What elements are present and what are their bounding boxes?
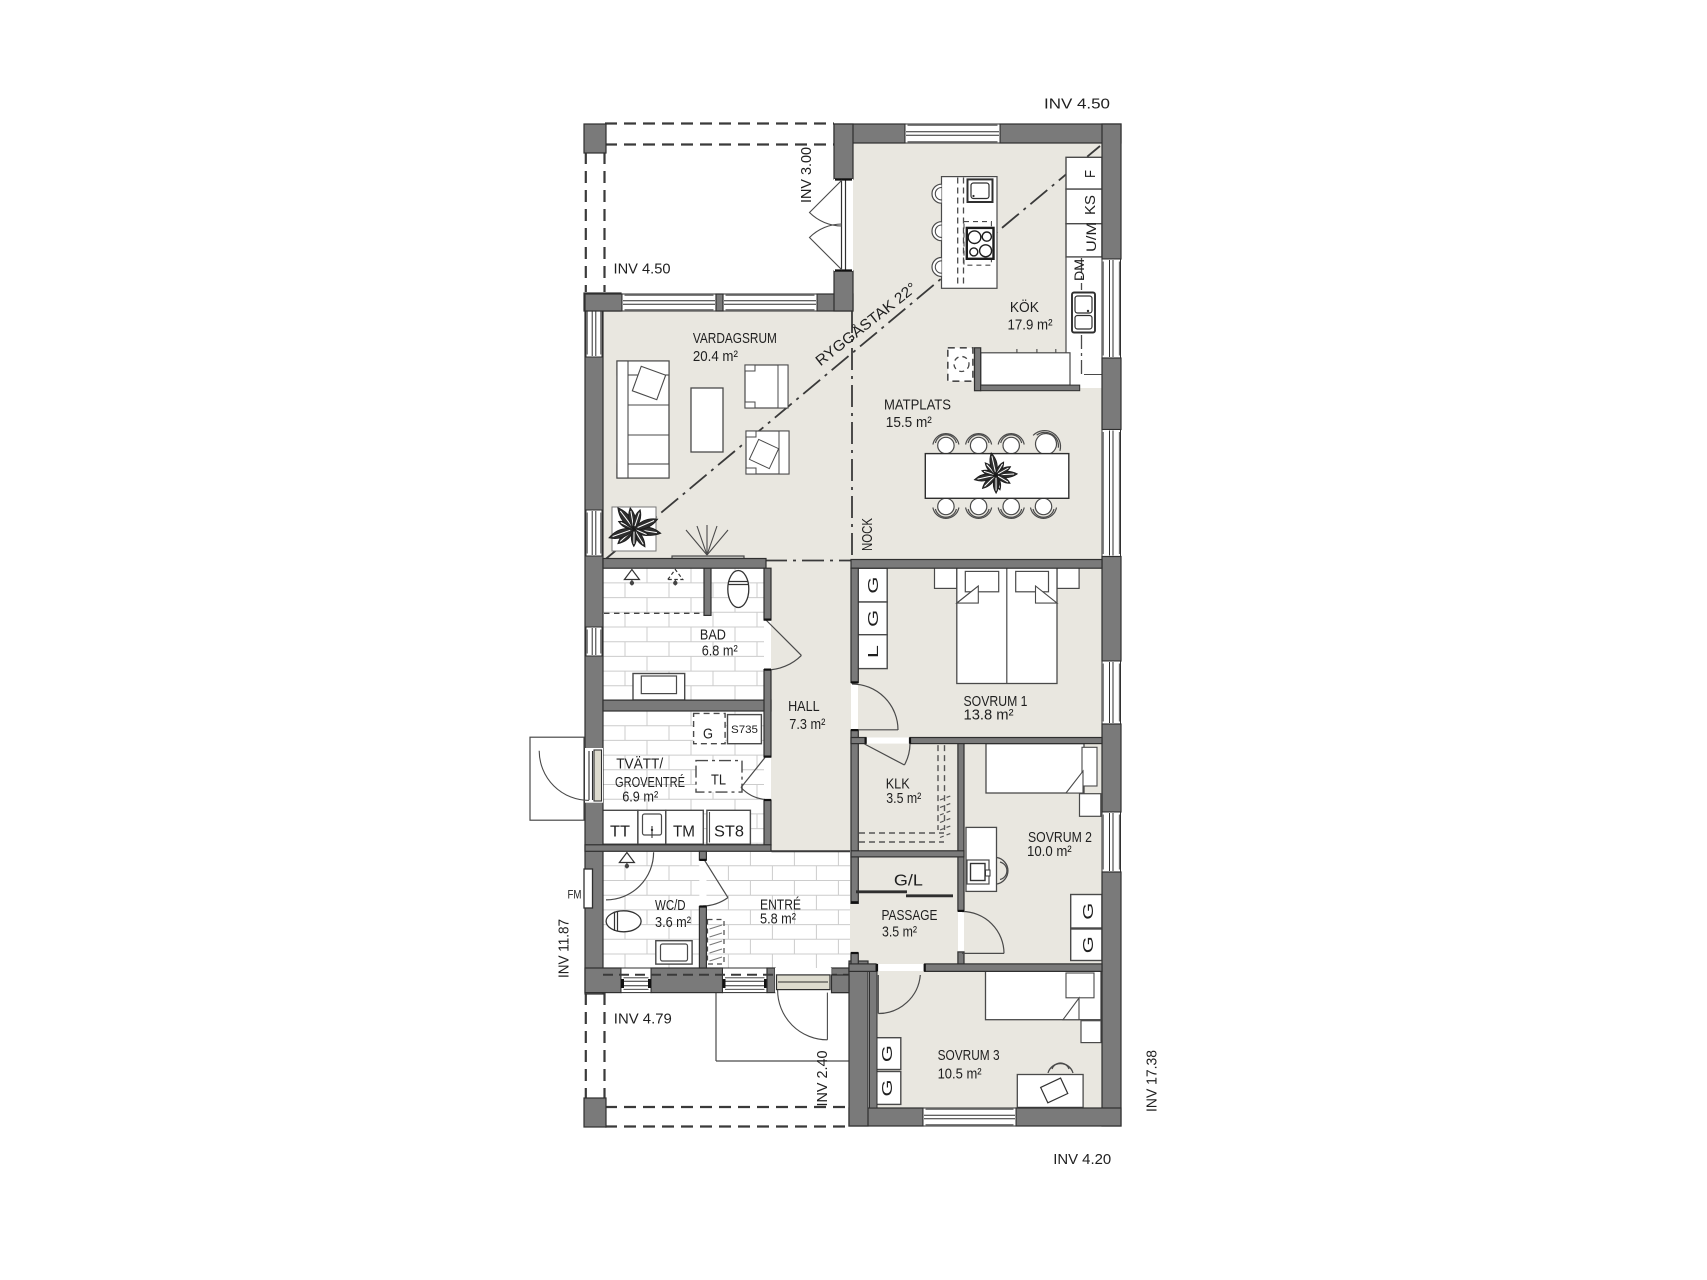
svg-text:F: F bbox=[1082, 170, 1099, 178]
svg-text:INV 2.40: INV 2.40 bbox=[814, 1051, 831, 1107]
svg-text:KÖK: KÖK bbox=[1010, 298, 1039, 316]
svg-text:G: G bbox=[879, 1045, 896, 1062]
svg-text:TL: TL bbox=[711, 772, 726, 789]
svg-text:G: G bbox=[1080, 936, 1097, 953]
svg-text:7.3 m²: 7.3 m² bbox=[789, 716, 825, 733]
svg-text:TM: TM bbox=[673, 824, 695, 841]
svg-text:FM: FM bbox=[568, 888, 582, 902]
svg-text:SOVRUM 3: SOVRUM 3 bbox=[938, 1047, 1000, 1064]
svg-text:13.8 m²: 13.8 m² bbox=[964, 707, 1014, 724]
svg-text:G: G bbox=[865, 610, 882, 627]
svg-text:DM: DM bbox=[1071, 259, 1087, 281]
svg-text:10.0 m²: 10.0 m² bbox=[1027, 843, 1072, 860]
svg-text:6.8 m²: 6.8 m² bbox=[702, 643, 738, 660]
svg-text:NOCK: NOCK bbox=[859, 518, 876, 551]
svg-text:WC/D: WC/D bbox=[655, 897, 686, 914]
svg-text:6.9 m²: 6.9 m² bbox=[622, 789, 658, 806]
svg-text:G: G bbox=[879, 1079, 896, 1096]
svg-text:U/M: U/M bbox=[1083, 222, 1099, 252]
svg-text:G: G bbox=[865, 577, 882, 594]
svg-text:L: L bbox=[865, 645, 882, 658]
svg-text:15.5 m²: 15.5 m² bbox=[886, 414, 932, 431]
svg-text:KS: KS bbox=[1082, 195, 1099, 215]
svg-text:3.5 m²: 3.5 m² bbox=[886, 790, 921, 807]
svg-text:17.9 m²: 17.9 m² bbox=[1008, 317, 1053, 334]
svg-text:INV 11.87: INV 11.87 bbox=[556, 919, 573, 978]
svg-text:G: G bbox=[1080, 903, 1097, 920]
svg-text:3.5 m²: 3.5 m² bbox=[882, 924, 917, 941]
svg-text:INV 4.50: INV 4.50 bbox=[1044, 96, 1110, 113]
svg-text:INV 3.00: INV 3.00 bbox=[798, 147, 815, 203]
svg-text:HALL: HALL bbox=[788, 698, 820, 715]
svg-text:INV 4.20: INV 4.20 bbox=[1053, 1151, 1111, 1168]
svg-text:MATPLATS: MATPLATS bbox=[884, 397, 951, 414]
svg-text:TT: TT bbox=[610, 824, 630, 841]
svg-text:20.4 m²: 20.4 m² bbox=[693, 348, 738, 365]
svg-text:10.5 m²: 10.5 m² bbox=[938, 1066, 982, 1083]
svg-text:PASSAGE: PASSAGE bbox=[882, 907, 938, 924]
svg-text:G/L: G/L bbox=[894, 873, 923, 890]
svg-text:BAD: BAD bbox=[700, 627, 726, 644]
svg-text:3.6 m²: 3.6 m² bbox=[655, 914, 691, 931]
svg-text:INV 4.79: INV 4.79 bbox=[614, 1011, 672, 1028]
svg-text:G: G bbox=[703, 726, 713, 743]
svg-text:S735: S735 bbox=[731, 724, 758, 736]
svg-text:VARDAGSRUM: VARDAGSRUM bbox=[693, 330, 777, 347]
svg-text:5.8 m²: 5.8 m² bbox=[760, 911, 796, 928]
svg-text:INV 17.38: INV 17.38 bbox=[1144, 1050, 1161, 1112]
svg-text:TVÄTT/: TVÄTT/ bbox=[616, 756, 664, 773]
svg-text:INV 4.50: INV 4.50 bbox=[614, 261, 671, 278]
svg-text:ST8: ST8 bbox=[714, 824, 744, 841]
